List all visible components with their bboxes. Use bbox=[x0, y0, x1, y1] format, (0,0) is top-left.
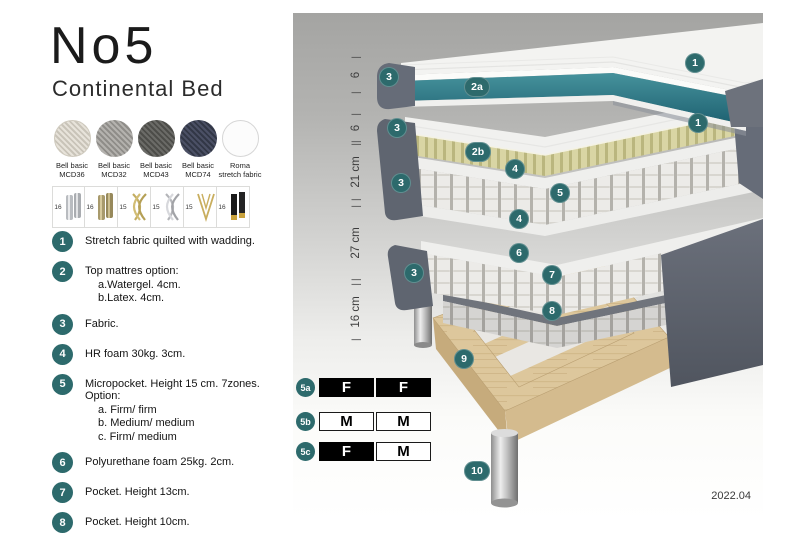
callout-2b: 2b bbox=[465, 142, 491, 162]
leg-option: 15 bbox=[184, 186, 217, 228]
leg-options: 16 16 15 15 bbox=[52, 186, 250, 228]
dimension-tick: | bbox=[351, 205, 362, 208]
feature-number-badge: 3 bbox=[52, 314, 73, 335]
callout-10: 10 bbox=[464, 461, 490, 481]
firmness-row-badge: 5b bbox=[296, 412, 315, 431]
version-stamp: 2022.04 bbox=[711, 490, 751, 502]
callout-2a: 2a bbox=[464, 77, 490, 97]
callout-3-middle-top: 3 bbox=[387, 118, 407, 138]
fabric-swatch-circle bbox=[54, 120, 91, 157]
feature-number-badge: 2 bbox=[52, 261, 73, 282]
feature-number-badge: 8 bbox=[52, 512, 73, 533]
gold-hairpin-leg-icon bbox=[194, 190, 216, 224]
feature-number-badge: 4 bbox=[52, 344, 73, 365]
callout-1-middle: 1 bbox=[688, 113, 708, 133]
firmness-row-5a: 5a F F bbox=[296, 378, 433, 397]
leg-height-label: 15 bbox=[151, 204, 161, 211]
leg-height-label: 16 bbox=[85, 204, 95, 211]
firmness-cell: M bbox=[319, 412, 374, 431]
dimension-tick: | bbox=[351, 91, 362, 94]
dimension-lower-mattress: | 27 cm | bbox=[348, 205, 364, 281]
fabric-swatch-circle bbox=[96, 120, 133, 157]
fabric-swatch: Bell basicMCD36 bbox=[51, 120, 93, 179]
feature-text: Pocket. Height 13cm. bbox=[85, 482, 190, 503]
metal-leg-front bbox=[491, 429, 518, 508]
leg-option: 15 bbox=[118, 186, 151, 228]
dimension-middle-mattress: | 21 cm | bbox=[348, 143, 364, 201]
callout-7: 7 bbox=[542, 265, 562, 285]
feature-text: Fabric. bbox=[85, 314, 119, 335]
fabric-swatch: Romastretch fabric bbox=[219, 120, 261, 179]
fabric-swatch-circle bbox=[138, 120, 175, 157]
fabric-swatch: Bell basicMCD74 bbox=[177, 120, 219, 179]
callout-6: 6 bbox=[509, 243, 529, 263]
firmness-row-badge: 5c bbox=[296, 442, 315, 461]
brass-cylinder-leg-icon bbox=[95, 190, 117, 224]
firmness-row-badge: 5a bbox=[296, 378, 315, 397]
leg-option: 16 bbox=[85, 186, 118, 228]
dimension-tick: | bbox=[351, 113, 362, 116]
leg-height-label: 16 bbox=[53, 204, 63, 211]
dimension-tick: | bbox=[351, 338, 362, 341]
chrome-twisted-leg-icon bbox=[161, 190, 183, 224]
firmness-row-5b: 5b M M bbox=[296, 412, 433, 431]
dimension-latex: | 6 | bbox=[348, 113, 364, 143]
callout-1-top: 1 bbox=[685, 53, 705, 73]
feature-item-7: 7 Pocket. Height 13cm. bbox=[52, 482, 297, 503]
feature-item-1: 1 Stretch fabric quilted with wadding. bbox=[52, 231, 297, 252]
firmness-cell: F bbox=[319, 442, 374, 461]
firmness-row-5c: 5c F M bbox=[296, 442, 433, 461]
leg-option: 16 bbox=[52, 186, 85, 228]
feature-item-8: 8 Pocket. Height 10cm. bbox=[52, 512, 297, 533]
callout-8: 8 bbox=[542, 301, 562, 321]
fabric-swatches: Bell basicMCD36 Bell basicMCD32 Bell bas… bbox=[51, 120, 287, 179]
page-subtitle: Continental Bed bbox=[52, 76, 224, 102]
fabric-swatch-label: Bell basicMCD43 bbox=[140, 161, 172, 179]
feature-item-2: 2 Top mattres option: a.Watergel. 4cm. b… bbox=[52, 261, 297, 305]
dimension-tick: | bbox=[351, 278, 362, 281]
fabric-swatch-label: Bell basicMCD32 bbox=[98, 161, 130, 179]
dimension-tick: | bbox=[351, 56, 362, 59]
callout-4-lower: 4 bbox=[509, 209, 529, 229]
firmness-cell: F bbox=[376, 378, 431, 397]
feature-list: 1 Stretch fabric quilted with wadding. 2… bbox=[52, 231, 297, 533]
feature-number-badge: 6 bbox=[52, 452, 73, 473]
page-title: No5 bbox=[50, 16, 157, 76]
feature-number-badge: 7 bbox=[52, 482, 73, 503]
fabric-swatch-label: Bell basicMCD74 bbox=[182, 161, 214, 179]
firmness-cell: F bbox=[319, 378, 374, 397]
feature-text: HR foam 30kg. 3cm. bbox=[85, 344, 185, 365]
leg-option: 16 bbox=[217, 186, 250, 228]
callout-9: 9 bbox=[454, 349, 474, 369]
dimension-tick: | bbox=[351, 143, 362, 146]
dimension-leg: | 16 cm | bbox=[348, 283, 364, 341]
feature-item-4: 4 HR foam 30kg. 3cm. bbox=[52, 344, 297, 365]
dimension-topper: | 6 | bbox=[348, 56, 364, 94]
callout-3-middle-bottom: 3 bbox=[391, 173, 411, 193]
feature-text: Polyurethane foam 25kg. 2cm. bbox=[85, 452, 234, 473]
feature-item-3: 3 Fabric. bbox=[52, 314, 297, 335]
dimension-tick: | bbox=[351, 198, 362, 201]
feature-text: Stretch fabric quilted with wadding. bbox=[85, 231, 255, 252]
bed-cutaway-diagram: | 6 | | 6 | | 21 cm | | 27 cm | | 16 cm … bbox=[293, 13, 763, 520]
feature-number-badge: 1 bbox=[52, 231, 73, 252]
fabric-swatch-circle bbox=[222, 120, 259, 157]
callout-4-upper: 4 bbox=[505, 159, 525, 179]
feature-text: Micropocket. Height 15 cm. 7zones. Optio… bbox=[85, 374, 297, 444]
callout-3-lower: 3 bbox=[404, 263, 424, 283]
fabric-swatch-label: Bell basicMCD36 bbox=[56, 161, 88, 179]
fabric-swatch-circle bbox=[180, 120, 217, 157]
callout-3-topper: 3 bbox=[379, 67, 399, 87]
leg-height-label: 15 bbox=[118, 204, 128, 211]
gold-twisted-leg-icon bbox=[128, 190, 150, 224]
leg-option: 15 bbox=[151, 186, 184, 228]
feature-text: Top mattres option: a.Watergel. 4cm. b.L… bbox=[85, 261, 181, 305]
feature-item-5: 5 Micropocket. Height 15 cm. 7zones. Opt… bbox=[52, 374, 297, 444]
chrome-cylinder-leg-icon bbox=[63, 190, 85, 224]
leg-height-label: 15 bbox=[184, 204, 194, 211]
callout-5: 5 bbox=[550, 183, 570, 203]
feature-item-6: 6 Polyurethane foam 25kg. 2cm. bbox=[52, 452, 297, 473]
feature-text: Pocket. Height 10cm. bbox=[85, 512, 190, 533]
product-sheet: No5 Continental Bed Bell basicMCD36 Bell… bbox=[0, 0, 800, 533]
firmness-cell: M bbox=[376, 442, 431, 461]
fabric-swatch: Bell basicMCD32 bbox=[93, 120, 135, 179]
feature-number-badge: 5 bbox=[52, 374, 73, 395]
fabric-swatch-label: Romastretch fabric bbox=[219, 161, 262, 179]
leg-height-label: 16 bbox=[217, 204, 227, 211]
fabric-swatch: Bell basicMCD43 bbox=[135, 120, 177, 179]
firmness-cell: M bbox=[376, 412, 431, 431]
dimension-tick: | bbox=[351, 283, 362, 286]
black-gold-tip-leg-icon bbox=[227, 190, 249, 224]
